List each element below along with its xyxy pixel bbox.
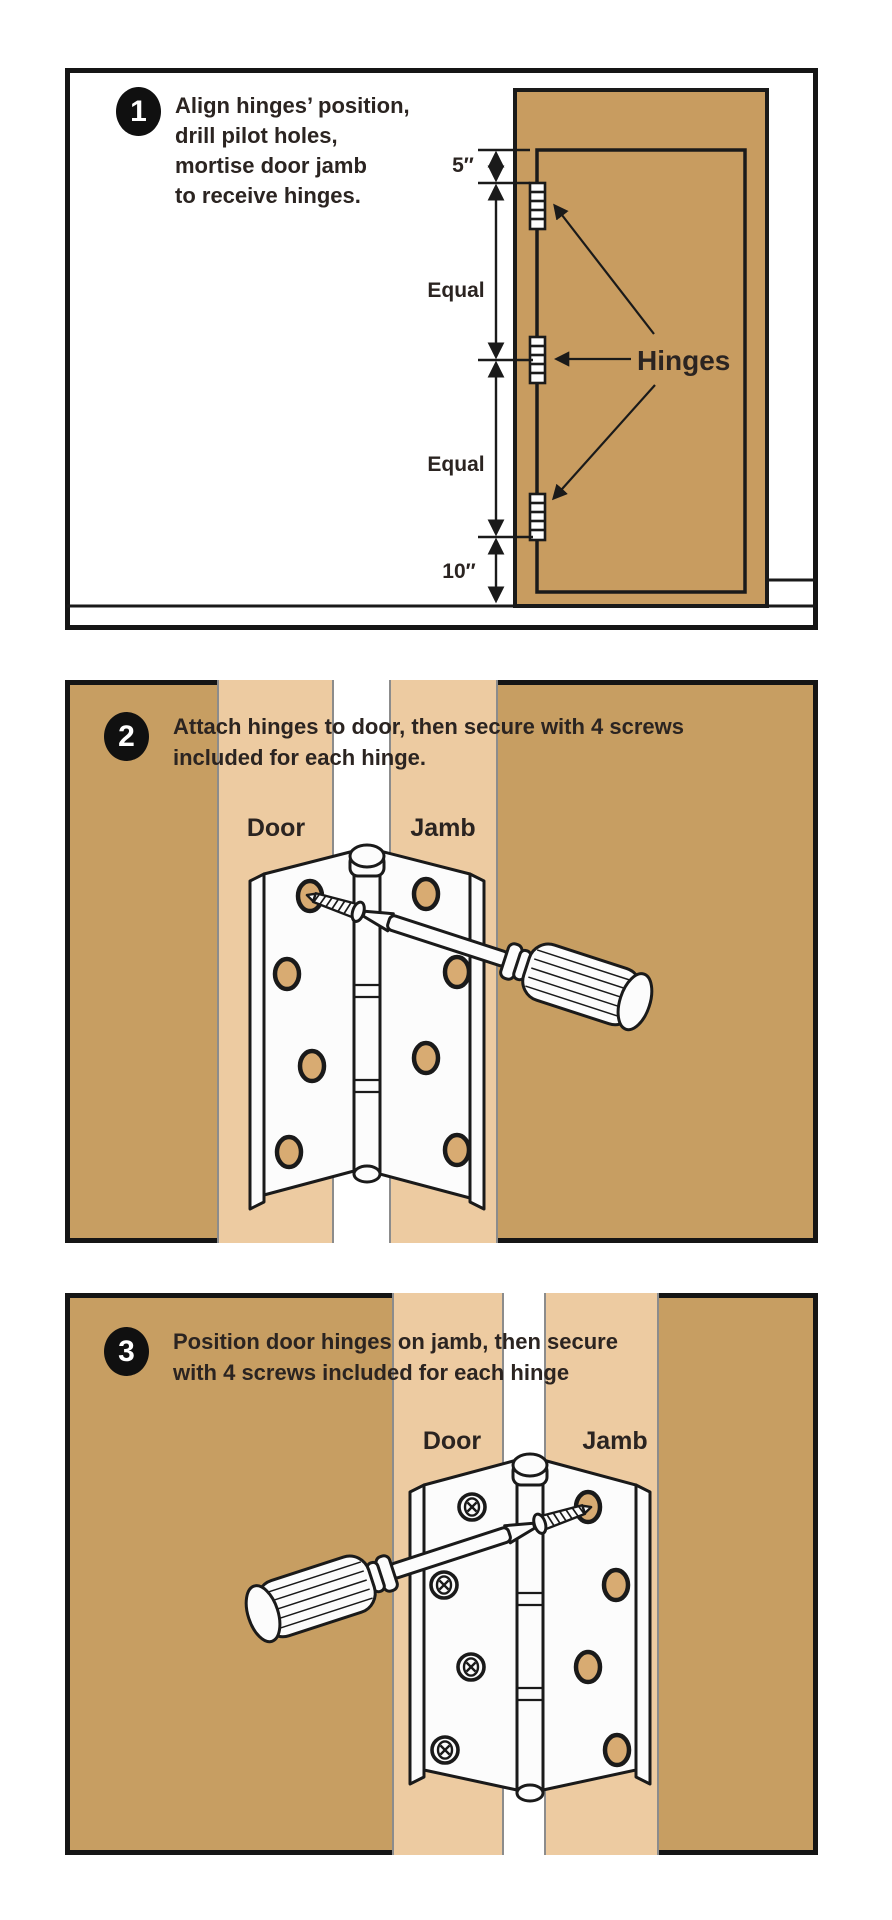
- phillips-screw-icon: [432, 1737, 458, 1763]
- hinge-illustration: [250, 845, 484, 1209]
- hinge-left-edge: [410, 1485, 424, 1784]
- dim-label-equal-upper: Equal: [427, 279, 484, 302]
- dim-label-10in: 10″: [442, 560, 475, 583]
- step-1-badge: 1: [116, 87, 161, 136]
- door-label: Door: [423, 1427, 482, 1455]
- step-2-number: 2: [118, 720, 135, 754]
- step-3-instruction: Position door hinges on jamb, then secur…: [173, 1326, 618, 1388]
- screwdriver-handle: [240, 1551, 381, 1646]
- instruction-line: included for each hinge.: [173, 742, 684, 773]
- door-label: Door: [247, 814, 306, 842]
- phillips-screw-icon: [458, 1654, 484, 1680]
- hinges-label: Hinges: [637, 345, 730, 376]
- hinge-left-edge: [250, 874, 264, 1209]
- dim-label-equal-lower: Equal: [427, 453, 484, 476]
- instruction-sheet: { "colors": { "wall_tan": "#C79E62", "st…: [0, 0, 892, 1920]
- hinge-barrel: [350, 845, 384, 1182]
- phillips-screw-icon: [431, 1572, 457, 1598]
- step-2-badge: 2: [104, 712, 149, 761]
- hinge-barrel: [513, 1454, 547, 1801]
- step-1-instruction: Align hinges’ position, drill pilot hole…: [175, 91, 410, 211]
- instruction-line: Attach hinges to door, then secure with …: [173, 711, 684, 742]
- dim-label-5in: 5″: [452, 154, 474, 177]
- hinge-mark-top: [530, 183, 545, 229]
- instruction-line: Align hinges’ position,: [175, 91, 410, 121]
- hinge-right-edge: [636, 1485, 650, 1784]
- instruction-line: drill pilot holes,: [175, 121, 410, 151]
- step-1-panel: 1 Align hinges’ position, drill pilot ho…: [65, 68, 818, 630]
- jamb-label: Jamb: [410, 814, 475, 842]
- instruction-line: Position door hinges on jamb, then secur…: [173, 1326, 618, 1357]
- instruction-line: to receive hinges.: [175, 181, 410, 211]
- step-2-panel: Door Jamb: [65, 680, 818, 1243]
- hinge-illustration: [410, 1454, 650, 1801]
- phillips-screw-icon: [459, 1494, 485, 1520]
- step-1-number: 1: [130, 95, 147, 129]
- step-3-badge: 3: [104, 1327, 149, 1376]
- instruction-line: with 4 screws included for each hinge: [173, 1357, 618, 1388]
- screwdriver-handle: [518, 939, 659, 1034]
- step-3-panel: Door Jamb: [65, 1293, 818, 1855]
- step-2-instruction: Attach hinges to door, then secure with …: [173, 711, 684, 773]
- hinge-mark-bottom: [530, 494, 545, 540]
- step-3-number: 3: [118, 1335, 135, 1369]
- instruction-line: mortise door jamb: [175, 151, 410, 181]
- hinge-right-edge: [470, 874, 484, 1209]
- jamb-label: Jamb: [582, 1427, 647, 1455]
